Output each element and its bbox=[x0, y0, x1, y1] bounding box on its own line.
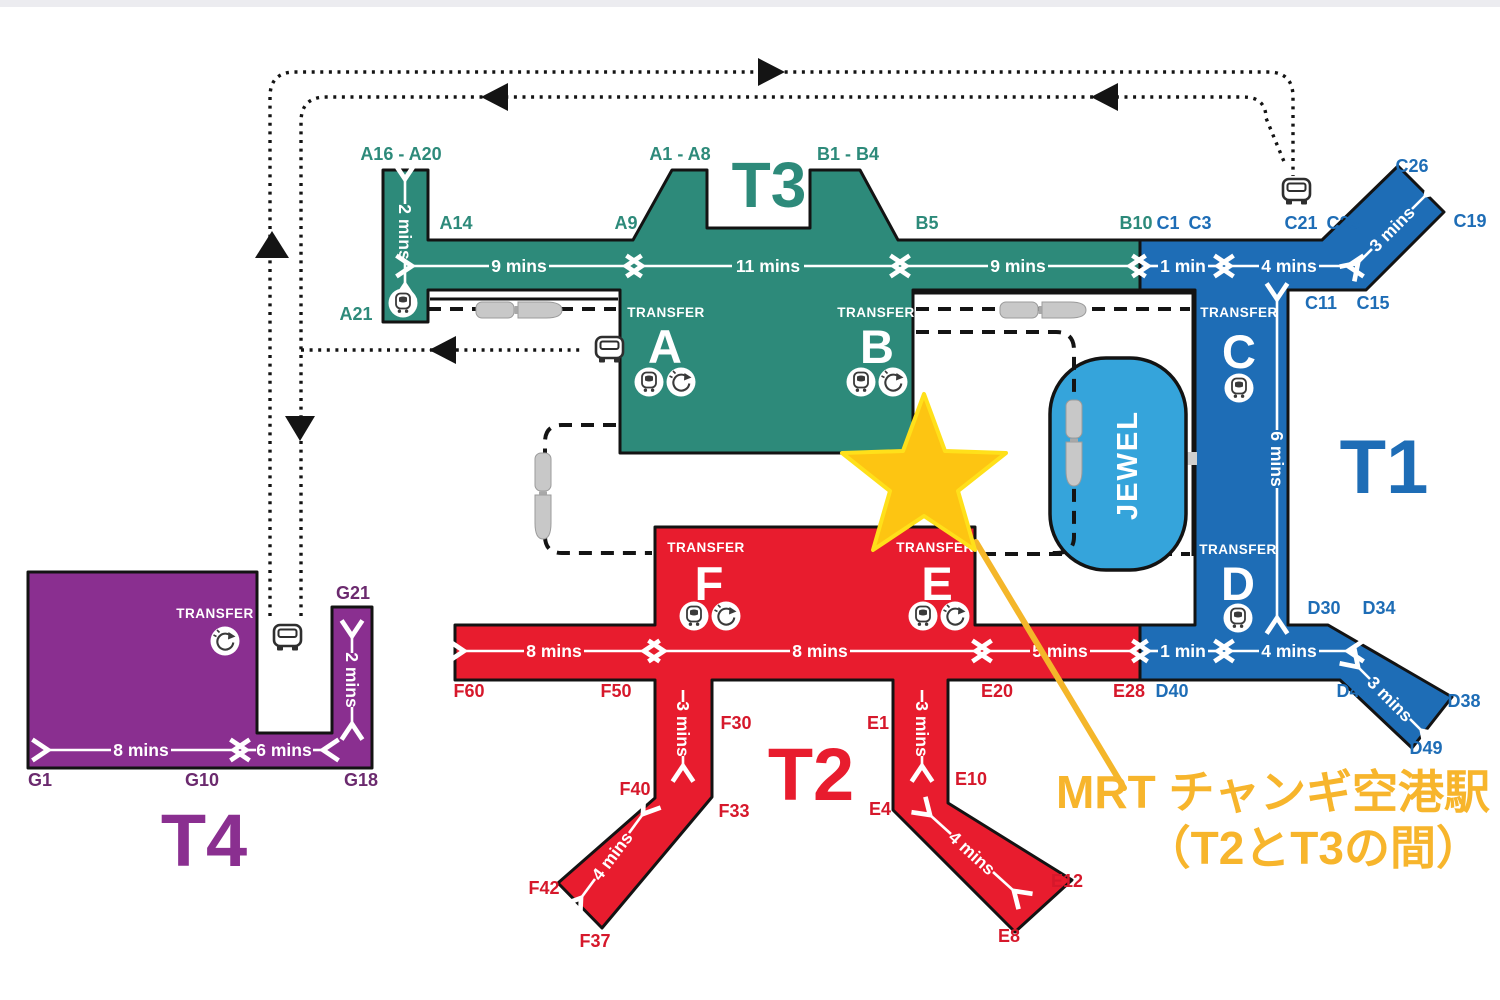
svg-text:9 mins: 9 mins bbox=[491, 256, 547, 276]
svg-text:3 mins: 3 mins bbox=[912, 701, 932, 757]
svg-text:G18: G18 bbox=[344, 770, 378, 790]
terminal-4-title: T4 bbox=[161, 799, 247, 882]
svg-text:TRANSFER: TRANSFER bbox=[837, 305, 915, 320]
svg-text:9 mins: 9 mins bbox=[990, 256, 1046, 276]
svg-text:C23: C23 bbox=[1326, 213, 1359, 233]
walk-time-f-arm-3mins: 3 mins bbox=[673, 690, 693, 766]
skytrain-icon bbox=[909, 602, 938, 631]
svg-text:F60: F60 bbox=[453, 681, 484, 701]
route-arrow-left bbox=[481, 83, 508, 111]
route-arrow-left bbox=[1091, 83, 1118, 111]
bus-icon bbox=[274, 625, 301, 651]
transfer-shuttle-icon bbox=[941, 602, 970, 631]
svg-text:B10: B10 bbox=[1119, 213, 1152, 233]
transfer-shuttle-icon bbox=[211, 627, 240, 656]
svg-text:E20: E20 bbox=[981, 681, 1013, 701]
skytrain-icon bbox=[680, 602, 709, 631]
svg-text:A21: A21 bbox=[339, 304, 372, 324]
jewel-label: JEWEL bbox=[1112, 410, 1144, 520]
svg-text:G21: G21 bbox=[336, 583, 370, 603]
svg-text:A1 - A8: A1 - A8 bbox=[649, 144, 710, 164]
skytrain-icon bbox=[1225, 374, 1254, 403]
svg-text:E4: E4 bbox=[869, 799, 891, 819]
svg-text:F33: F33 bbox=[718, 801, 749, 821]
route-arrow-up bbox=[255, 231, 289, 258]
bus-icon bbox=[1283, 179, 1310, 205]
svg-text:D: D bbox=[1221, 557, 1255, 610]
skytrain-icon bbox=[1224, 604, 1253, 633]
skytrain-icon bbox=[847, 368, 876, 397]
svg-text:F: F bbox=[695, 557, 724, 610]
route-arrow-right bbox=[758, 58, 785, 86]
svg-text:E28: E28 bbox=[1113, 681, 1145, 701]
svg-text:C21: C21 bbox=[1284, 213, 1317, 233]
svg-text:C19: C19 bbox=[1453, 211, 1486, 231]
svg-text:TRANSFER: TRANSFER bbox=[667, 540, 745, 555]
svg-text:C11: C11 bbox=[1305, 293, 1337, 313]
gate-labels-t2: F60 F50 E20 E28 F30 E1 F40 F33 E10 E4 F4… bbox=[453, 681, 1145, 951]
svg-text:E10: E10 bbox=[955, 769, 987, 789]
svg-text:B5: B5 bbox=[915, 213, 938, 233]
svg-text:8 mins: 8 mins bbox=[526, 641, 582, 661]
svg-text:D38: D38 bbox=[1447, 691, 1480, 711]
transfer-shuttle-icon bbox=[667, 368, 696, 397]
svg-text:4 mins: 4 mins bbox=[1261, 256, 1317, 276]
svg-text:F37: F37 bbox=[579, 931, 610, 951]
svg-text:2 mins: 2 mins bbox=[342, 652, 362, 708]
svg-text:TRANSFER: TRANSFER bbox=[176, 606, 254, 621]
svg-text:8 mins: 8 mins bbox=[792, 641, 848, 661]
svg-text:D46: D46 bbox=[1336, 681, 1369, 701]
svg-text:TRANSFER: TRANSFER bbox=[1199, 542, 1277, 557]
svg-text:3 mins: 3 mins bbox=[673, 701, 693, 757]
svg-text:TRANSFER: TRANSFER bbox=[1200, 305, 1278, 320]
terminal-2-shape bbox=[455, 527, 1140, 932]
svg-text:F40: F40 bbox=[619, 779, 650, 799]
svg-text:E12: E12 bbox=[1051, 871, 1083, 891]
svg-text:11 mins: 11 mins bbox=[736, 256, 800, 276]
skytrain-vehicle bbox=[535, 453, 551, 539]
svg-text:A9: A9 bbox=[614, 213, 637, 233]
page-top-strip bbox=[0, 0, 1500, 7]
svg-text:E8: E8 bbox=[998, 926, 1020, 946]
changi-map-canvas: JEWEL 2 mins 9 mins 11 mins 9 mins 1 min… bbox=[0, 0, 1500, 1000]
svg-text:G1: G1 bbox=[28, 770, 52, 790]
walk-time-e-arm-3mins: 3 mins bbox=[912, 690, 932, 766]
svg-text:D40: D40 bbox=[1155, 681, 1188, 701]
svg-text:B: B bbox=[860, 320, 894, 373]
svg-text:D49: D49 bbox=[1409, 738, 1442, 758]
svg-text:4 mins: 4 mins bbox=[1261, 641, 1317, 661]
svg-text:C1: C1 bbox=[1156, 213, 1179, 233]
transfer-shuttle-icon bbox=[879, 368, 908, 397]
svg-text:E1: E1 bbox=[867, 713, 889, 733]
svg-text:A14: A14 bbox=[439, 213, 472, 233]
svg-text:C3: C3 bbox=[1188, 213, 1211, 233]
svg-text:C26: C26 bbox=[1395, 156, 1428, 176]
svg-text:1 min: 1 min bbox=[1160, 256, 1206, 276]
svg-text:TRANSFER: TRANSFER bbox=[627, 305, 705, 320]
airport-terminal-map: JEWEL 2 mins 9 mins 11 mins 9 mins 1 min… bbox=[0, 0, 1500, 1000]
svg-text:B1 - B4: B1 - B4 bbox=[817, 144, 879, 164]
svg-text:A16 - A20: A16 - A20 bbox=[360, 144, 441, 164]
svg-text:F30: F30 bbox=[720, 713, 751, 733]
walk-time-t4-6mins: 6 mins bbox=[246, 740, 323, 760]
route-arrow-left bbox=[429, 336, 456, 364]
terminal-1-title: T1 bbox=[1340, 425, 1429, 510]
svg-text:6 mins: 6 mins bbox=[256, 740, 312, 760]
svg-text:A: A bbox=[648, 320, 682, 373]
route-arrow-down bbox=[285, 416, 315, 441]
svg-text:D34: D34 bbox=[1362, 598, 1395, 618]
annotation-line2: （T2とT3の間） bbox=[1145, 822, 1482, 874]
svg-text:F50: F50 bbox=[600, 681, 631, 701]
skytrain-vehicle bbox=[1000, 302, 1086, 318]
bus-icon bbox=[596, 337, 623, 363]
svg-text:C15: C15 bbox=[1356, 293, 1389, 313]
skytrain-vehicle bbox=[1066, 400, 1082, 486]
svg-text:6 mins: 6 mins bbox=[1267, 431, 1287, 487]
skytrain-icon-a21 bbox=[389, 289, 418, 318]
annotation-line1: MRT チャンギ空港駅 bbox=[1056, 766, 1490, 818]
terminal-3-title: T3 bbox=[732, 149, 807, 221]
svg-text:2 mins: 2 mins bbox=[395, 204, 415, 260]
svg-text:8 mins: 8 mins bbox=[113, 740, 169, 760]
svg-text:F42: F42 bbox=[528, 878, 559, 898]
svg-text:1 min: 1 min bbox=[1160, 641, 1206, 661]
svg-text:C: C bbox=[1222, 325, 1256, 378]
terminal-2-title: T2 bbox=[768, 733, 854, 816]
skytrain-vehicle bbox=[476, 302, 562, 318]
svg-text:G10: G10 bbox=[185, 770, 219, 790]
transfer-shuttle-icon bbox=[712, 602, 741, 631]
terminal-4-shape bbox=[28, 572, 372, 768]
svg-text:D30: D30 bbox=[1307, 598, 1340, 618]
skytrain-icon bbox=[635, 368, 664, 397]
